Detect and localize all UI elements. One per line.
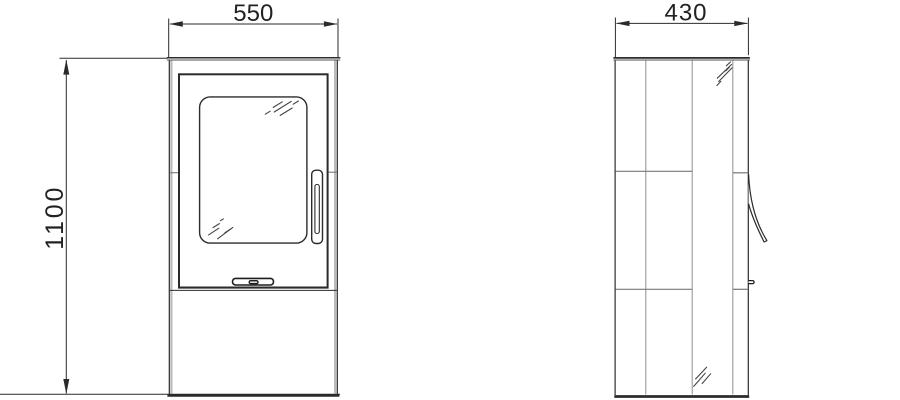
svg-text:430: 430 [664, 0, 707, 27]
svg-text:1100: 1100 [41, 185, 69, 250]
svg-text:550: 550 [233, 0, 273, 27]
